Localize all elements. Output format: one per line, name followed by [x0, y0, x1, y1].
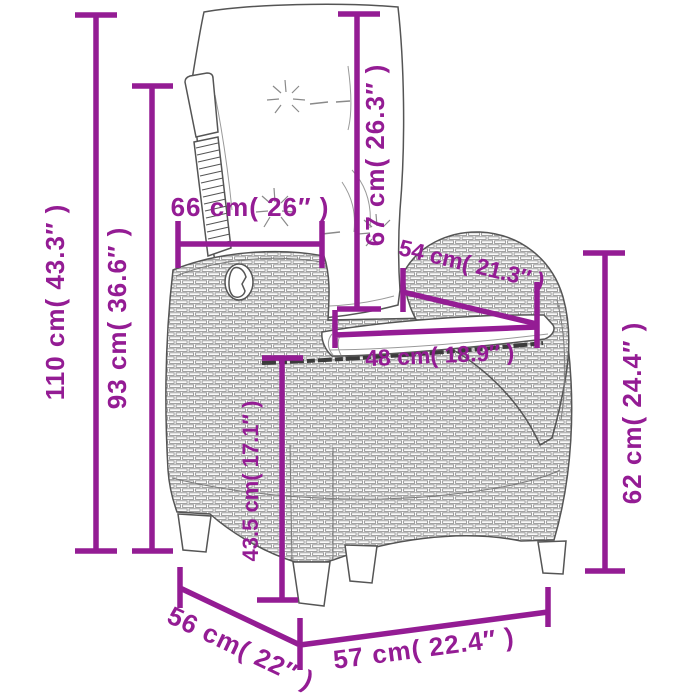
dimension-line-93 — [132, 86, 173, 551]
dim-label-62: 62 cm( 24.4″ ) — [617, 322, 647, 505]
chair-leg-left — [178, 514, 211, 552]
chair-leg-front — [293, 562, 330, 606]
dim-label-67: 67 cm( 26.3″ ) — [360, 64, 390, 247]
dim-label-66: 66 cm( 26″ ) — [171, 192, 330, 222]
chair-leg-right — [538, 541, 566, 574]
chair-leg-back — [345, 545, 377, 583]
backframe-hole-inner — [229, 267, 246, 297]
dim-label-93: 93 cm( 36.6″ ) — [102, 227, 132, 410]
chair-dimension-diagram: 110 cm( 43.3″ ) 93 cm( 36.6″ ) 66 cm( 26… — [0, 0, 700, 700]
recline-ratchet-pad — [185, 73, 218, 137]
dim-label-43-5: 43.5 cm( 17.1″ ) — [238, 401, 263, 562]
dimension-diagram-page: 110 cm( 43.3″ ) 93 cm( 36.6″ ) 66 cm( 26… — [0, 0, 700, 700]
dim-label-110: 110 cm( 43.3″ ) — [40, 204, 70, 401]
